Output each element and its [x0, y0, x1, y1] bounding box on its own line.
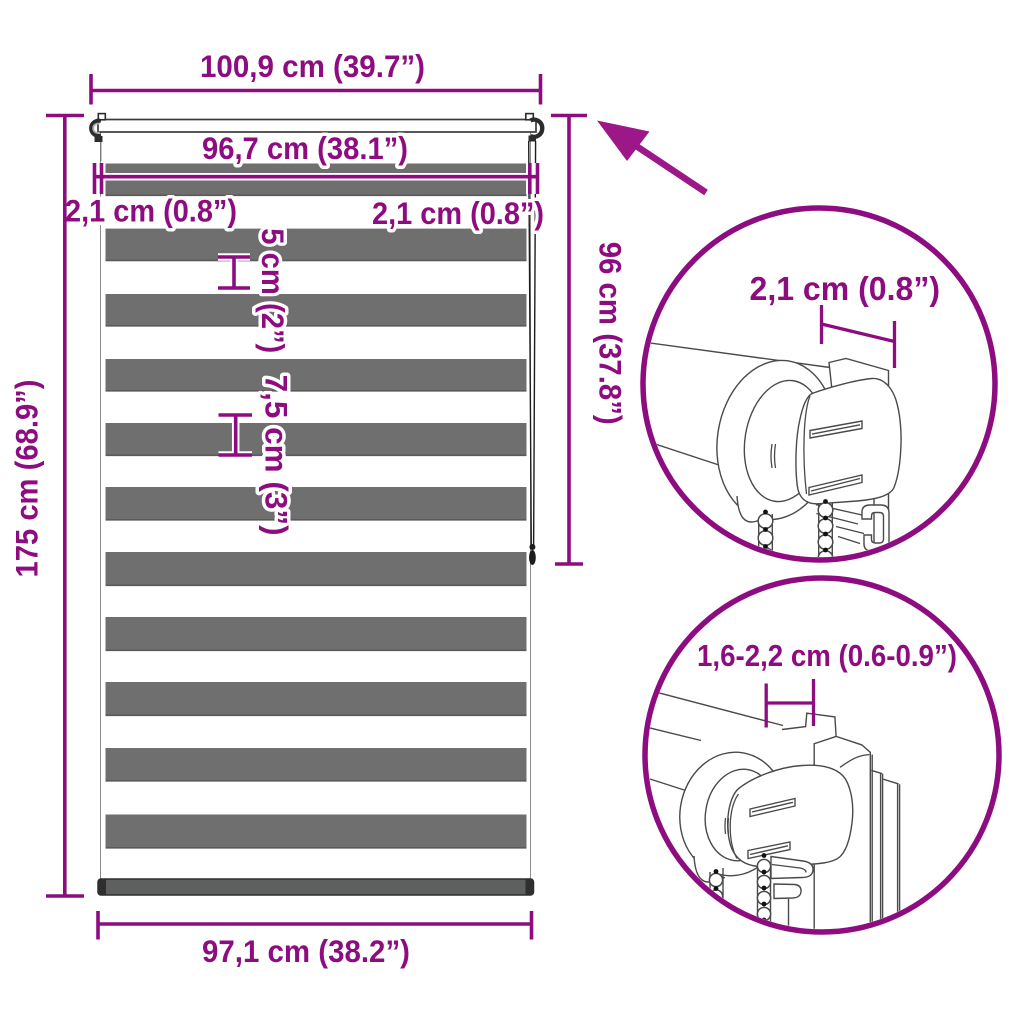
svg-text:100,9 cm (39.7”): 100,9 cm (39.7”): [200, 48, 425, 84]
svg-text:96 cm (37.8”): 96 cm (37.8”): [593, 242, 629, 425]
svg-text:96,7 cm (38.1”): 96,7 cm (38.1”): [202, 130, 408, 166]
svg-text:5 cm (2”): 5 cm (2”): [255, 228, 291, 353]
svg-text:7,5 cm (3”): 7,5 cm (3”): [259, 375, 295, 536]
svg-text:97,1 cm (38.2”): 97,1 cm (38.2”): [202, 933, 410, 969]
svg-text:2,1 cm (0.8”): 2,1 cm (0.8”): [65, 193, 237, 229]
svg-text:175 cm (68.9”): 175 cm (68.9”): [9, 380, 45, 578]
svg-text:1,6-2,2 cm (0.6-0.9”): 1,6-2,2 cm (0.6-0.9”): [697, 638, 957, 673]
svg-text:2,1 cm (0.8”): 2,1 cm (0.8”): [750, 270, 941, 307]
svg-text:2,1 cm (0.8”): 2,1 cm (0.8”): [372, 195, 544, 231]
